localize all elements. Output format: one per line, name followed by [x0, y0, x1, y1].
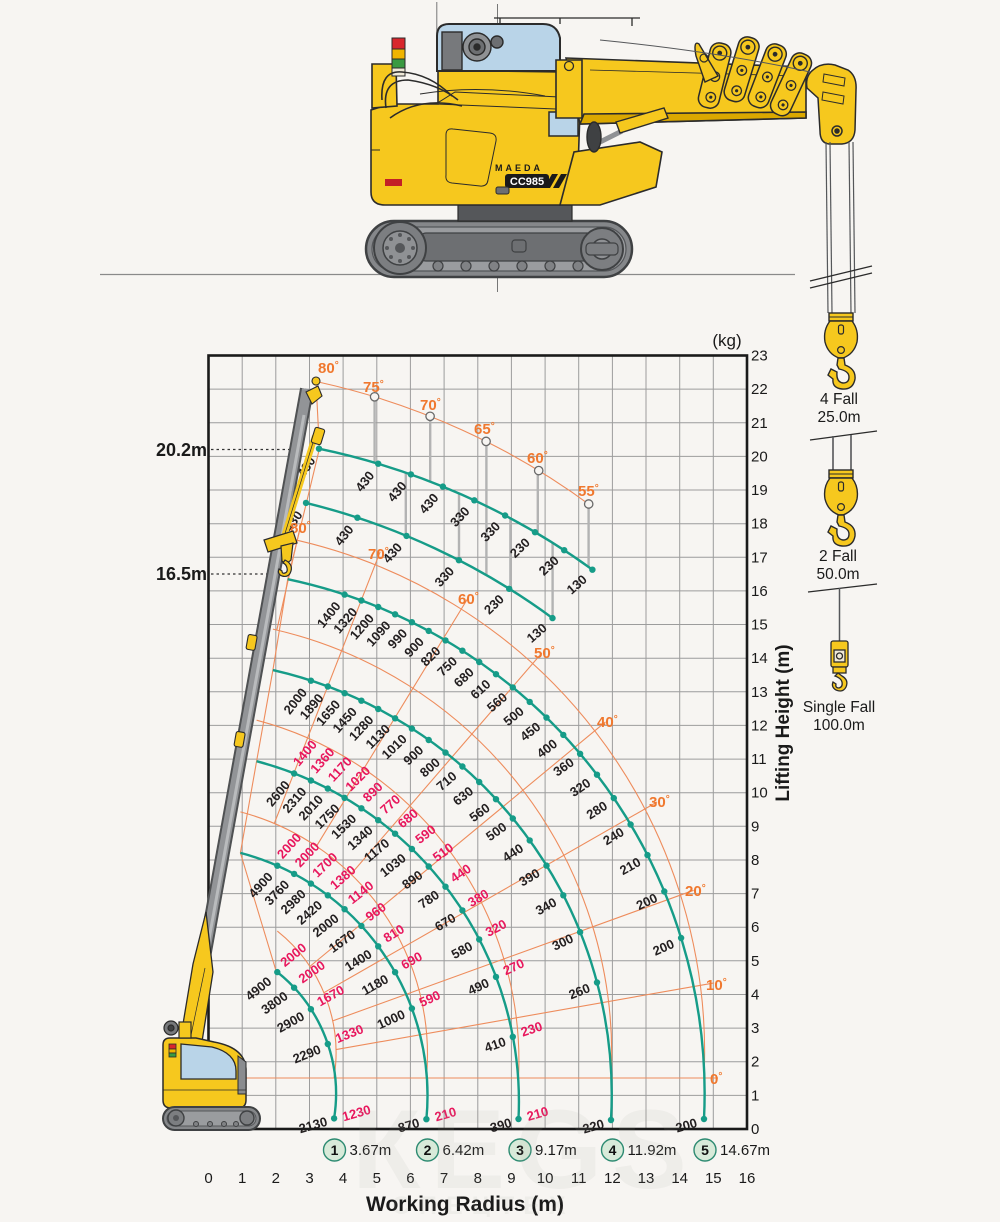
svg-text:1: 1	[331, 1142, 339, 1158]
svg-text:5: 5	[701, 1142, 709, 1158]
svg-text:12: 12	[751, 717, 768, 734]
svg-text:50.0m: 50.0m	[816, 566, 859, 583]
svg-text:3: 3	[305, 1170, 313, 1187]
svg-text:MAEDA: MAEDA	[495, 163, 543, 173]
svg-text:16: 16	[739, 1170, 756, 1187]
svg-text:22: 22	[751, 381, 768, 398]
svg-text:20: 20	[751, 448, 768, 465]
svg-text:5: 5	[751, 953, 759, 970]
svg-text:2: 2	[272, 1170, 280, 1187]
svg-text:14.67m: 14.67m	[720, 1142, 770, 1159]
svg-text:17: 17	[751, 549, 768, 566]
svg-text:1: 1	[238, 1170, 246, 1187]
svg-text:10: 10	[751, 785, 768, 802]
svg-text:СПЕЦТЕХ: СПЕЦТЕХ	[392, 1192, 575, 1217]
svg-text:9: 9	[751, 818, 759, 835]
svg-text:1: 1	[751, 1087, 759, 1104]
svg-text:3: 3	[751, 1020, 759, 1037]
svg-text:7: 7	[751, 886, 759, 903]
svg-text:4: 4	[751, 987, 759, 1004]
svg-text:0: 0	[204, 1170, 212, 1187]
svg-text:2: 2	[751, 1054, 759, 1071]
svg-text:19: 19	[751, 482, 768, 499]
svg-text:4: 4	[339, 1170, 347, 1187]
svg-text:0: 0	[751, 1121, 759, 1138]
svg-text:14: 14	[751, 650, 768, 667]
svg-text:23: 23	[751, 348, 768, 365]
svg-text:21: 21	[751, 415, 768, 432]
svg-text:8: 8	[751, 852, 759, 869]
svg-text:25.0m: 25.0m	[817, 409, 860, 426]
svg-text:Single Fall: Single Fall	[803, 699, 875, 716]
svg-text:CC985: CC985	[510, 176, 544, 188]
svg-text:6: 6	[751, 919, 759, 936]
svg-text:4 Fall: 4 Fall	[820, 391, 858, 408]
svg-text:16: 16	[751, 583, 768, 600]
svg-text:11: 11	[751, 751, 767, 768]
svg-text:(kg): (kg)	[712, 331, 741, 350]
svg-text:13: 13	[751, 684, 768, 701]
svg-text:20.2m: 20.2m	[156, 440, 207, 460]
svg-text:100.0m: 100.0m	[813, 717, 865, 734]
svg-text:15: 15	[705, 1170, 722, 1187]
svg-text:15: 15	[751, 617, 768, 634]
svg-text:2 Fall: 2 Fall	[819, 548, 857, 565]
svg-text:Lifting Height (m): Lifting Height (m)	[773, 644, 794, 801]
svg-text:16.5m: 16.5m	[156, 564, 207, 584]
svg-text:18: 18	[751, 516, 768, 533]
